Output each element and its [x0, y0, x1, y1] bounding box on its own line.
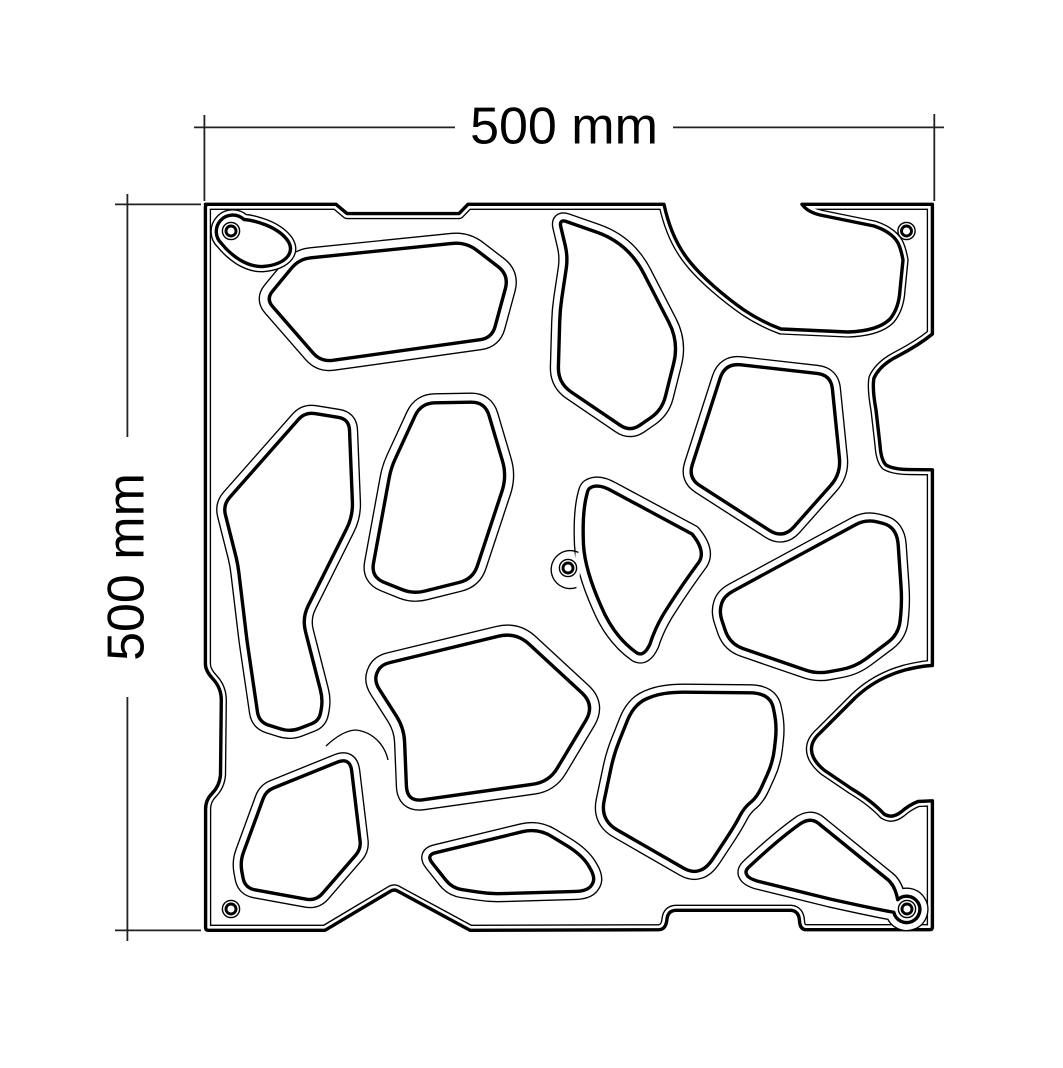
svg-text:500 mm: 500 mm: [98, 473, 156, 661]
svg-text:500 mm: 500 mm: [470, 98, 658, 156]
